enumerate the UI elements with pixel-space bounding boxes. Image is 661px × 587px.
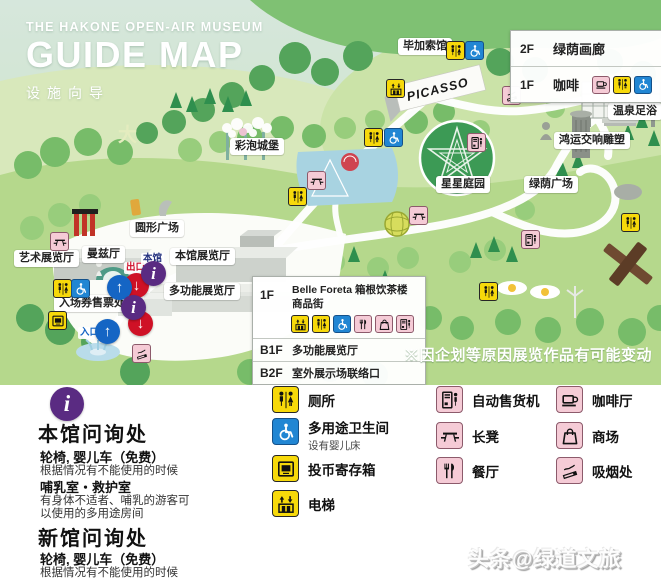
map-label-bubble-castle: 彩泡城堡 — [230, 138, 284, 155]
facility-name: 咖啡 — [553, 75, 579, 94]
elevator-icon — [386, 79, 405, 98]
wheelchair-icon — [384, 128, 403, 147]
coin-locker-icon — [272, 455, 299, 482]
legend-label: 长凳 — [472, 426, 499, 446]
map-label-art-hall: 艺术展览厅 — [14, 250, 79, 267]
toilet-icon — [272, 386, 299, 413]
legend-label: 自动售货机 — [472, 390, 540, 410]
wheelchair-icon — [634, 76, 652, 94]
facility-name-line: Belle Foreta 箱根饮茶楼 — [292, 283, 408, 297]
legend-label: 吸烟处 — [592, 461, 633, 481]
info-icon: i — [151, 264, 156, 284]
wheelchair-icon — [272, 418, 299, 445]
map-label-foot-bath: 温泉足浴 — [608, 103, 661, 120]
map-label-star-garden: 星星庭园 — [436, 176, 490, 193]
elevator-icon — [291, 315, 309, 333]
toilet-icon — [446, 41, 465, 60]
facility-info-box: 1F Belle Foreta 箱根饮茶楼 商品街 B1F 多功能展览厅 B2F… — [252, 276, 426, 385]
map-label-picasso-hall: 毕加索馆 — [398, 38, 452, 55]
facility-box-row: B2F 室外展示场联络口 — [253, 361, 425, 384]
toilet-icon — [312, 315, 330, 333]
entrance-arrow-marker: ↑ — [95, 319, 120, 344]
legend-item-coin-locker: 投币寄存箱 — [272, 455, 376, 482]
facility-box-row: 1F Belle Foreta 箱根饮茶楼 商品街 — [253, 277, 425, 313]
floor-label: 2F — [520, 42, 544, 56]
info-desk-marker: i — [141, 261, 166, 286]
map-label-green-plaza: 绿荫广场 — [524, 176, 578, 193]
info-desk-line: 根据情况有不能使用的时候 — [40, 462, 178, 478]
down-arrow-icon: ↓ — [133, 277, 141, 294]
legend-item-accessible-restroom: 多用途卫生间 设有婴儿床 — [272, 418, 389, 453]
map-label-main-hall: 本馆展览厅 — [170, 248, 235, 265]
info-desk-marker: i — [121, 295, 146, 320]
wheelchair-icon — [465, 41, 484, 60]
legend-item-elevator: 电梯 — [272, 490, 335, 517]
shop-icon — [375, 315, 393, 333]
gallery-box-row: 2F 绿荫画廊 — [511, 31, 661, 66]
toilet-icon — [53, 279, 72, 298]
bench-icon — [436, 422, 463, 449]
floor-label: B2F — [260, 366, 288, 380]
facility-icons — [592, 76, 652, 94]
facility-name: Belle Foreta 箱根饮茶楼 商品街 — [292, 279, 408, 311]
facility-name: 室外展示场联络口 — [292, 365, 380, 381]
map-label-manzu-hall: 曼兹厅 — [82, 246, 125, 263]
gallery-box-row: 1F 咖啡 — [511, 66, 661, 102]
facility-icons — [291, 315, 419, 333]
legend-text: 多用途卫生间 设有婴儿床 — [308, 418, 389, 453]
legend-item-cafe: 咖啡厅 — [556, 386, 633, 413]
coin-locker-icon — [48, 311, 67, 330]
watermark: 头条@绿道文旅 — [468, 543, 621, 573]
gallery-info-box: 2F 绿荫画廊 1F 咖啡 — [510, 30, 661, 103]
red-pillar-sculpture — [72, 209, 98, 236]
floor-label: B1F — [260, 343, 288, 357]
legend-sublabel: 设有婴儿床 — [308, 438, 389, 453]
toilet-icon — [621, 213, 640, 232]
facility-name: 多功能展览厅 — [292, 342, 358, 358]
vending-machine-icon — [521, 230, 540, 249]
legend-label: 餐厅 — [472, 461, 499, 481]
cafe-icon — [592, 76, 610, 94]
bench-icon — [50, 232, 69, 251]
info-desk-icon: i — [50, 387, 84, 421]
vending-machine-icon — [396, 315, 414, 333]
facility-name-line: 商品街 — [292, 297, 408, 311]
info-icon: i — [64, 391, 70, 417]
vending-machine-icon — [467, 133, 486, 152]
legend-item-restaurant: 餐厅 — [436, 457, 499, 484]
exhibition-notice: ※因企划等原因展览作品有可能变动 — [404, 344, 652, 365]
legend-item-bench: 长凳 — [436, 422, 499, 449]
map-label-multi-hall: 多功能展览厅 — [164, 283, 240, 300]
wheelchair-icon — [71, 279, 90, 298]
legend-label: 电梯 — [308, 494, 335, 514]
floor-label: 1F — [260, 288, 288, 302]
map-label-circular-plaza: 圆形广场 — [130, 220, 184, 237]
toilet-icon — [479, 282, 498, 301]
smoking-area-icon — [556, 457, 583, 484]
toilet-icon — [613, 76, 631, 94]
bench-icon — [307, 171, 326, 190]
legend-label: 投币寄存箱 — [308, 459, 376, 479]
legend-label: 厕所 — [308, 390, 335, 410]
restaurant-icon — [354, 315, 372, 333]
restaurant-icon — [436, 457, 463, 484]
shop-icon — [556, 422, 583, 449]
legend-label: 多用途卫生间 — [308, 421, 389, 438]
smoking-area-icon — [132, 344, 151, 363]
elevator-icon — [272, 490, 299, 517]
floor-label: 1F — [520, 78, 544, 92]
info-desk-title: 本馆问询处 — [38, 418, 148, 447]
guide-map-poster: PICASSO — [0, 0, 661, 587]
legend-item-shop: 商场 — [556, 422, 619, 449]
legend-section: i 本馆问询处 轮椅, 婴儿车（免费） 根据情况有不能使用的时候 哺乳室・救护室… — [0, 385, 661, 587]
info-desk-title: 新馆问询处 — [38, 522, 148, 551]
wheelchair-icon — [333, 315, 351, 333]
legend-label: 商场 — [592, 426, 619, 446]
map-label-symphony-sculpture: 鸿运交响雕塑 — [554, 132, 630, 149]
info-icon: i — [131, 298, 136, 318]
toilet-icon — [288, 187, 307, 206]
legend-item-vending-machine: 自动售货机 — [436, 386, 540, 413]
info-desk-line: 根据情况有不能使用的时候 — [40, 564, 178, 580]
up-arrow-icon: ↑ — [116, 279, 124, 296]
vending-machine-icon — [436, 386, 463, 413]
legend-item-smoking-area: 吸烟处 — [556, 457, 633, 484]
info-desk-line: 以使用的多用途房间 — [40, 505, 144, 521]
elephant-sculpture — [614, 184, 642, 200]
legend-label: 咖啡厅 — [592, 390, 633, 410]
bench-icon — [409, 206, 428, 225]
facility-box-row: B1F 多功能展览厅 — [253, 338, 425, 361]
legend-item-toilet: 厕所 — [272, 386, 335, 413]
cafe-icon — [556, 386, 583, 413]
sphere-sculpture — [385, 212, 409, 236]
facility-name: 绿荫画廊 — [553, 39, 605, 58]
toilet-icon — [364, 128, 383, 147]
up-arrow-icon: ↑ — [104, 323, 112, 340]
